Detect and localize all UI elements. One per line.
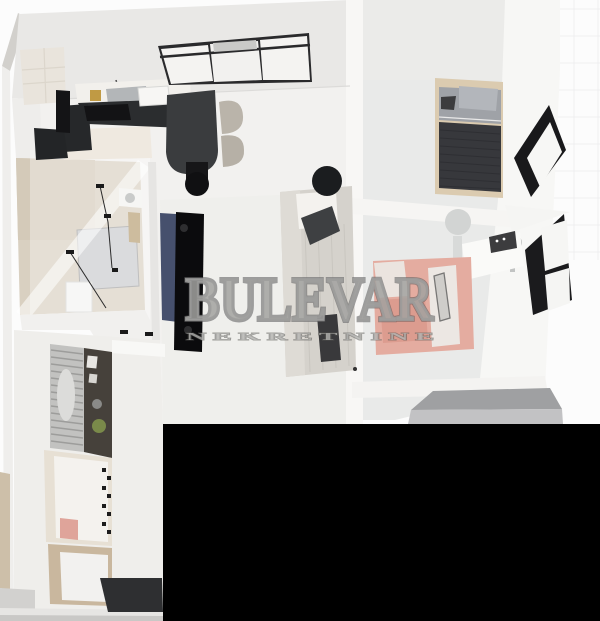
svg-text:N E K R E T N I N E: N E K R E T N I N E bbox=[186, 331, 434, 343]
svg-text:BULEVAR: BULEVAR bbox=[185, 266, 434, 334]
